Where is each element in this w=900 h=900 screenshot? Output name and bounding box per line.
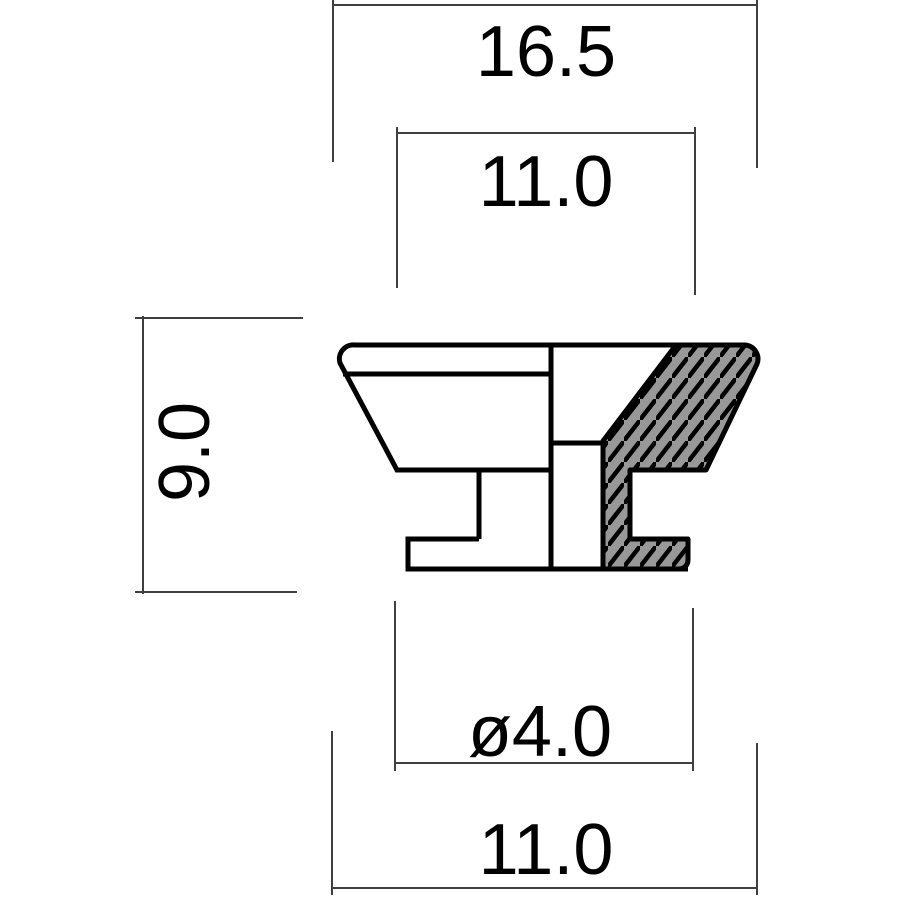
section-hatch-region (603, 345, 758, 569)
drawing-canvas: 16.5 11.0 9.0 ø4.0 11.0 (0, 0, 900, 900)
dim-label-height: 9.0 (145, 402, 225, 502)
dimension-labels: 16.5 11.0 9.0 ø4.0 11.0 (145, 12, 616, 890)
dim-label-overall-top-width: 16.5 (476, 12, 616, 92)
part-view (339, 343, 758, 571)
dim-label-upper-inner-width: 11.0 (479, 142, 614, 222)
part-outline-left (339, 345, 551, 470)
dim-label-hole-diameter: ø4.0 (468, 692, 612, 772)
dim-label-lower-width: 11.0 (479, 810, 614, 890)
technical-drawing-svg: 16.5 11.0 9.0 ø4.0 11.0 (0, 0, 900, 900)
